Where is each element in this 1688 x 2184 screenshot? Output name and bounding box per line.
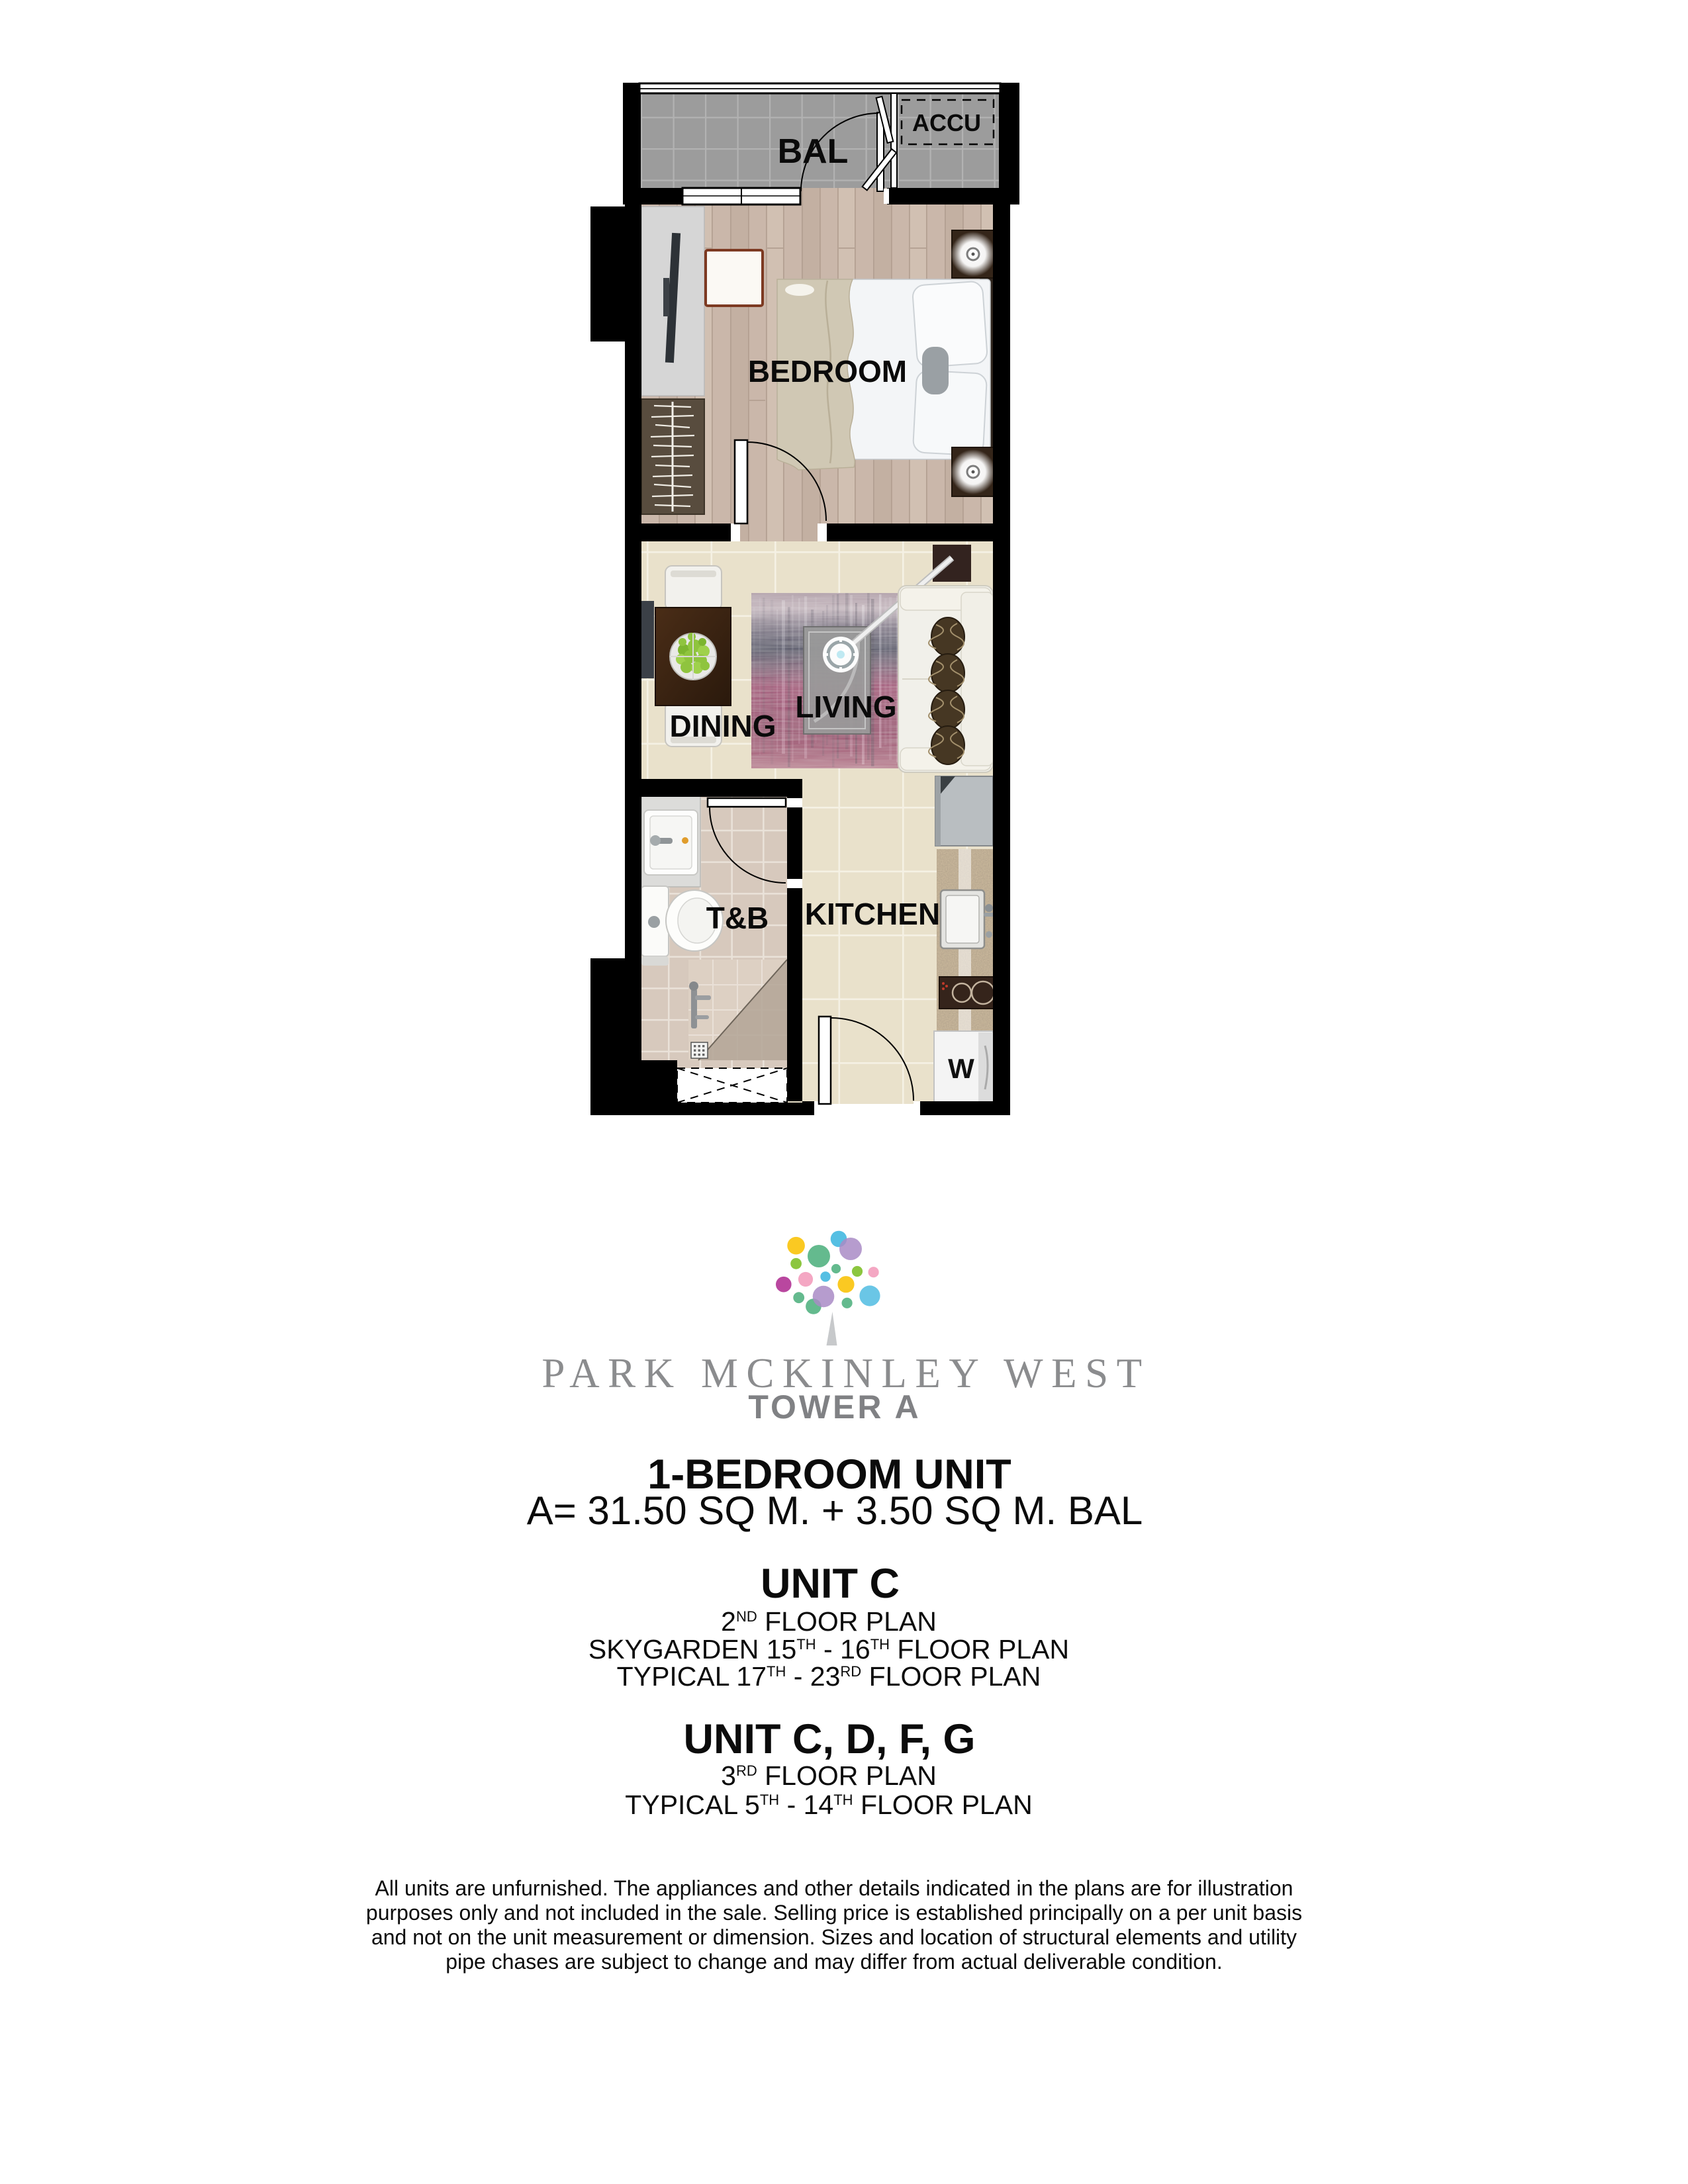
svg-text:LIVING: LIVING [795,690,896,724]
svg-text:W: W [948,1053,974,1084]
svg-text:TOWER A: TOWER A [748,1388,921,1426]
svg-text:2ND FLOOR PLAN: 2ND FLOOR PLAN [721,1606,937,1637]
svg-text:T&B: T&B [706,901,769,935]
svg-text:SKYGARDEN 15TH - 16TH FLOOR PL: SKYGARDEN 15TH - 16TH FLOOR PLAN [588,1634,1069,1664]
svg-text:UNIT C: UNIT C [761,1561,900,1607]
svg-text:pipe chases are subject to cha: pipe chases are subject to change and ma… [445,1950,1222,1974]
svg-text:All units are unfurnished. The: All units are unfurnished. The appliance… [375,1876,1293,1900]
svg-text:TYPICAL 5TH - 14TH FLOOR PLAN: TYPICAL 5TH - 14TH FLOOR PLAN [625,1790,1032,1820]
svg-text:KITCHEN: KITCHEN [805,897,940,931]
svg-text:BAL: BAL [778,132,849,171]
svg-text:TYPICAL 17TH - 23RD FLOOR PLAN: TYPICAL 17TH - 23RD FLOOR PLAN [617,1661,1041,1692]
svg-text:and not on the unit measuremen: and not on the unit measurement or dimen… [371,1925,1297,1949]
svg-text:BEDROOM: BEDROOM [748,354,907,388]
svg-text:DINING: DINING [670,709,776,743]
svg-text:A= 31.50 SQ M. + 3.50 SQ M. BA: A= 31.50 SQ M. + 3.50 SQ M. BAL [527,1488,1143,1533]
svg-text:purposes only and not included: purposes only and not included in the sa… [366,1901,1302,1925]
svg-text:3RD FLOOR PLAN: 3RD FLOOR PLAN [721,1760,937,1791]
svg-text:UNIT C, D, F, G: UNIT C, D, F, G [684,1716,976,1762]
svg-text:ACCU: ACCU [912,109,981,136]
